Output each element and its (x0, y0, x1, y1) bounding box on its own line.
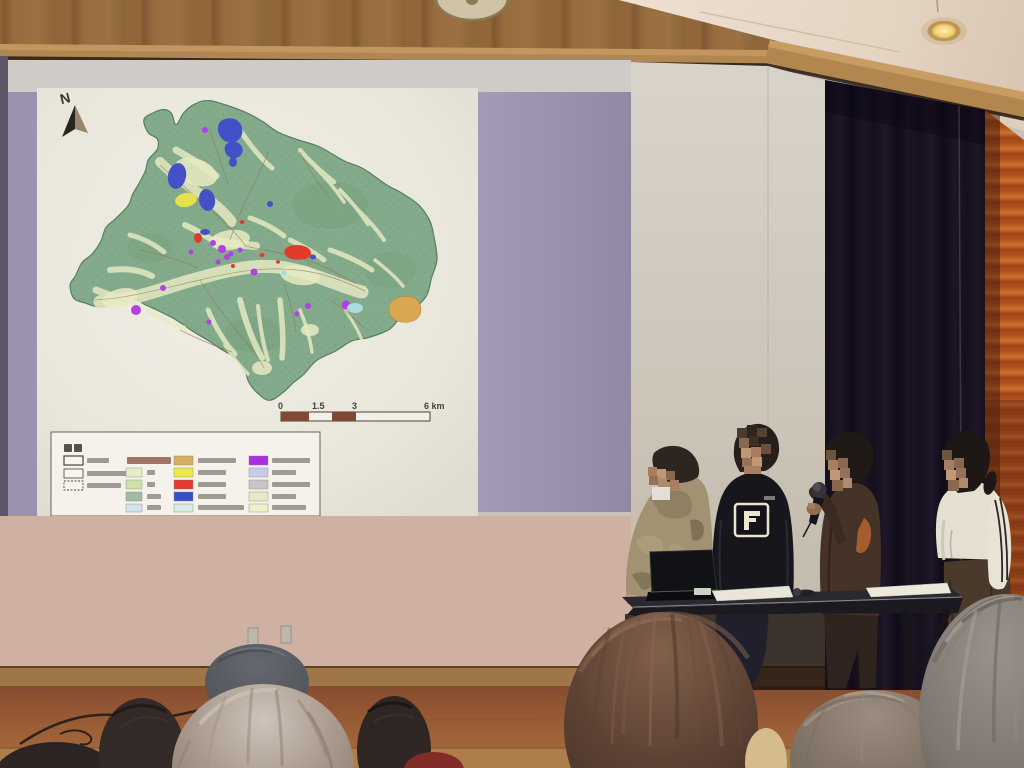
svg-text:3: 3 (352, 401, 357, 411)
svg-text:1.5: 1.5 (312, 401, 325, 411)
svg-text:0: 0 (278, 401, 283, 411)
svg-text:6 km: 6 km (424, 401, 445, 411)
